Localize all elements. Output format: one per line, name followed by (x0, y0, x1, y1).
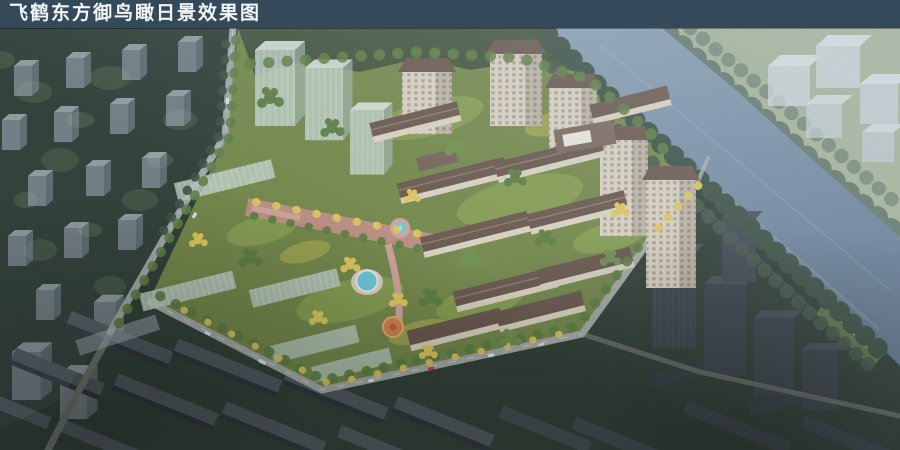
aerial-render (0, 0, 900, 450)
page-title: 飞鹤东方御鸟瞰日景效果图 (0, 0, 900, 28)
title-bar: 飞鹤东方御鸟瞰日景效果图 (0, 0, 900, 28)
render-viewport: 飞鹤东方御鸟瞰日景效果图 (0, 0, 900, 450)
atmosphere-overlays (0, 0, 900, 450)
